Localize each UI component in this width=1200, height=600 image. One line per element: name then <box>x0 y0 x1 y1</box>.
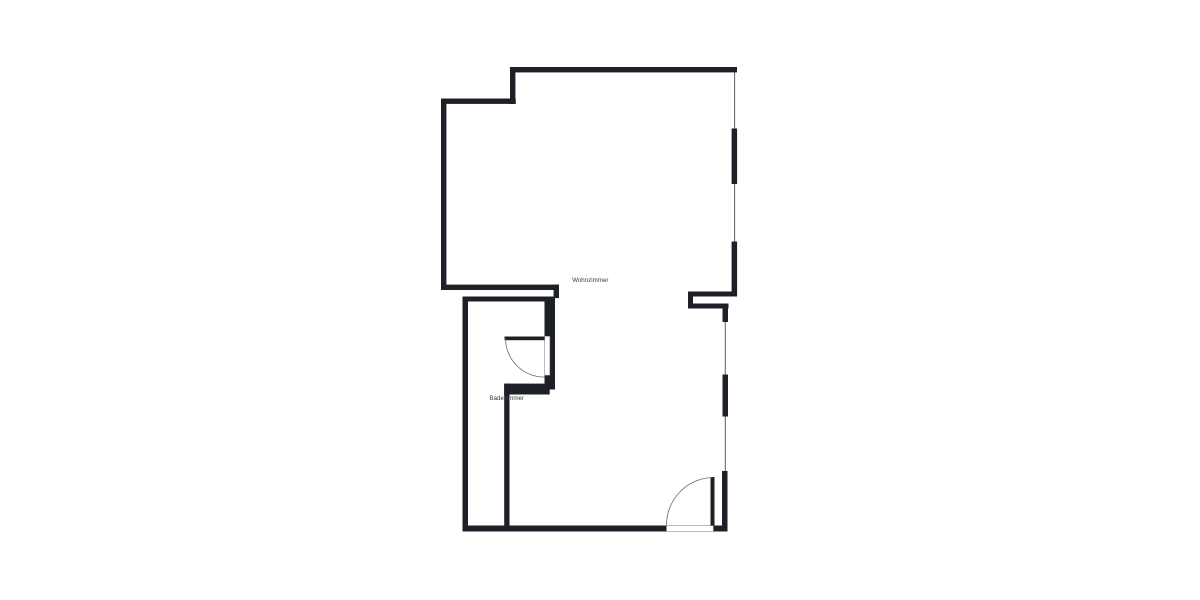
svg-text:Wohnzimmer: Wohnzimmer <box>572 277 608 284</box>
svg-text:Badezimmer: Badezimmer <box>489 395 524 402</box>
